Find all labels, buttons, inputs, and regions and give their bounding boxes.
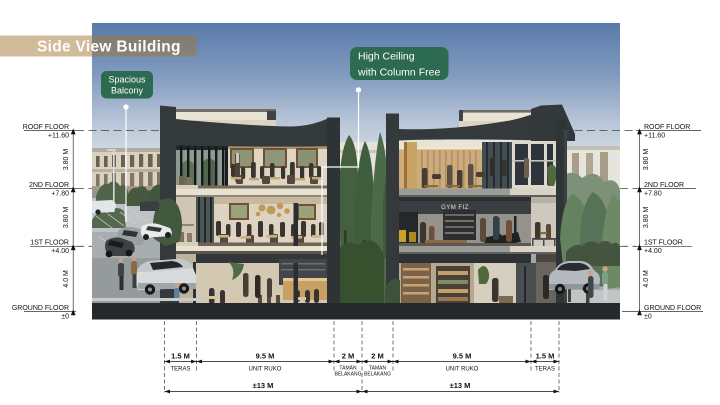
svg-text:+7.80: +7.80	[51, 191, 69, 198]
svg-text:+7.80: +7.80	[644, 191, 662, 198]
svg-text:+4.00: +4.00	[644, 248, 662, 255]
svg-text:3.80 M: 3.80 M	[63, 207, 70, 229]
svg-text:GROUND FLOOR: GROUND FLOOR	[12, 305, 69, 312]
svg-text:3.80 M: 3.80 M	[643, 207, 650, 229]
svg-text:Balcony: Balcony	[111, 86, 144, 96]
svg-text:9.5 M: 9.5 M	[453, 352, 472, 361]
svg-text:4.0 M: 4.0 M	[643, 270, 650, 288]
svg-text:1ST FLOOR: 1ST FLOOR	[644, 240, 683, 247]
svg-text:2ND FLOOR: 2ND FLOOR	[644, 182, 684, 189]
svg-text:3.80 M: 3.80 M	[63, 149, 70, 171]
svg-text:ROOF FLOOR: ROOF FLOOR	[23, 124, 69, 131]
svg-text:1ST FLOOR: 1ST FLOOR	[30, 240, 69, 247]
svg-text:2 M: 2 M	[371, 352, 384, 361]
svg-text:UNIT RUKO: UNIT RUKO	[249, 367, 282, 373]
svg-text:1.5 M: 1.5 M	[536, 352, 555, 361]
svg-text:High Ceiling: High Ceiling	[358, 51, 415, 63]
svg-text:TERAS: TERAS	[170, 367, 190, 373]
svg-text:TERAS: TERAS	[535, 367, 555, 373]
svg-text:±0: ±0	[61, 313, 69, 320]
svg-text:3.80 M: 3.80 M	[643, 149, 650, 171]
svg-text:±13 M: ±13 M	[450, 381, 471, 390]
svg-text:±13 M: ±13 M	[253, 381, 274, 390]
svg-text:GROUND FLOOR: GROUND FLOOR	[644, 305, 701, 312]
svg-text:4.0 M: 4.0 M	[63, 270, 70, 288]
svg-text:BELAKANG: BELAKANG	[364, 372, 391, 378]
svg-text:2 M: 2 M	[342, 352, 355, 361]
svg-text:ROOF FLOOR: ROOF FLOOR	[644, 124, 690, 131]
svg-text:UNIT RUKO: UNIT RUKO	[446, 367, 479, 373]
svg-text:Side View Building: Side View Building	[37, 39, 181, 56]
svg-text:1.5 M: 1.5 M	[171, 352, 190, 361]
svg-text:Spacious: Spacious	[108, 75, 146, 85]
svg-text:with Column Free: with Column Free	[357, 67, 440, 79]
svg-text:±0: ±0	[644, 313, 652, 320]
svg-text:+11.60: +11.60	[644, 133, 665, 140]
svg-text:9.5 M: 9.5 M	[256, 352, 275, 361]
svg-text:2ND FLOOR: 2ND FLOOR	[29, 182, 69, 189]
svg-text:+11.60: +11.60	[48, 133, 69, 140]
svg-text:+4.00: +4.00	[51, 248, 69, 255]
svg-text:BELAKANG: BELAKANG	[335, 372, 362, 378]
